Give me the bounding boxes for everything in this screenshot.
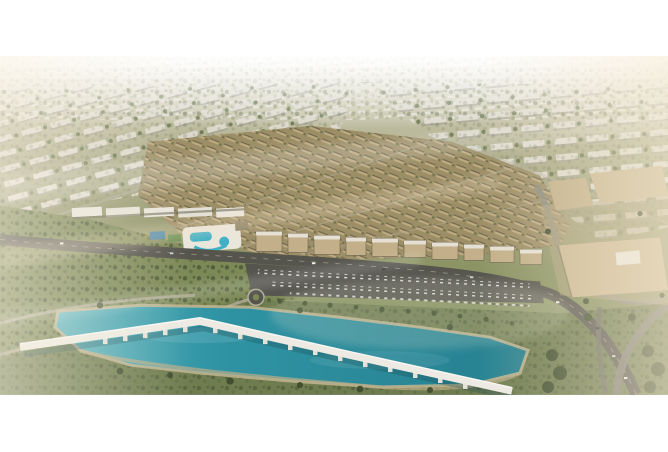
- aerial-development-render: [0, 56, 668, 395]
- page: [0, 0, 668, 452]
- render-canvas: [0, 56, 668, 395]
